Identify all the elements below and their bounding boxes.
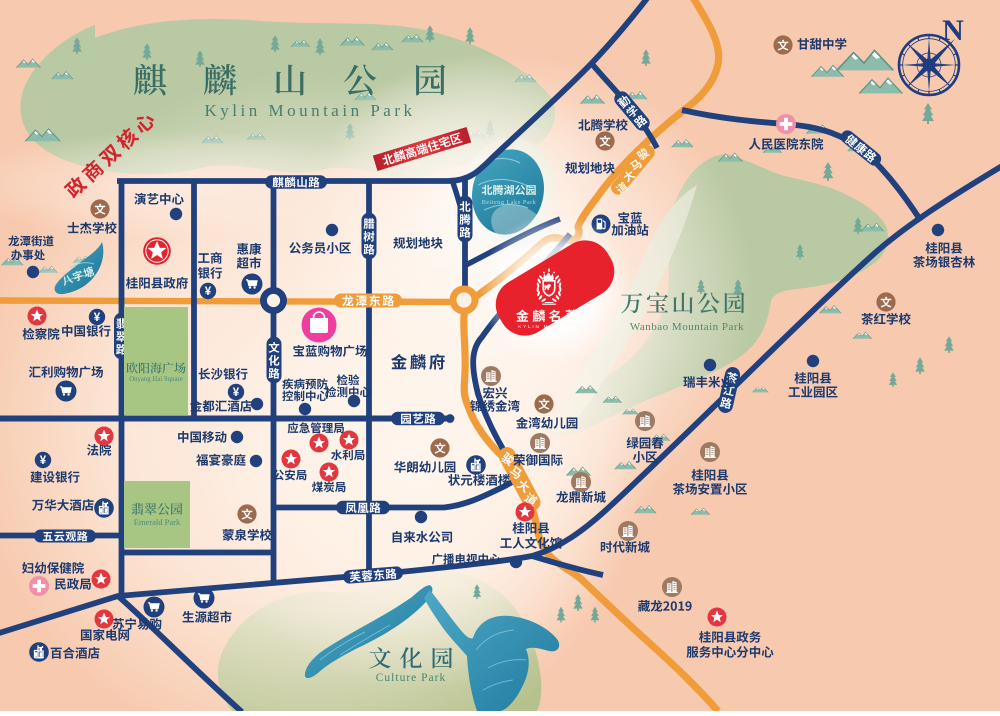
svg-text:®: ® [578,306,582,313]
svg-text:Culture Park: Culture Park [376,672,446,684]
svg-text:Beiteng Lake Park: Beiteng Lake Park [482,199,537,206]
svg-text:¥: ¥ [40,455,47,467]
svg-text:Ouyang Hai Square: Ouyang Hai Square [129,376,183,383]
svg-text:¥: ¥ [233,387,240,399]
svg-text:Emerald Park: Emerald Park [134,517,181,527]
svg-text:¥: ¥ [94,312,101,324]
svg-text:KYLIN MANSION: KYLIN MANSION [518,324,577,329]
svg-text:N: N [942,14,964,47]
svg-text:Kylin Mountain Park: Kylin Mountain Park [205,101,416,120]
svg-text:¥: ¥ [205,286,212,298]
svg-text:Wanbao Mountain Park: Wanbao Mountain Park [630,321,744,333]
